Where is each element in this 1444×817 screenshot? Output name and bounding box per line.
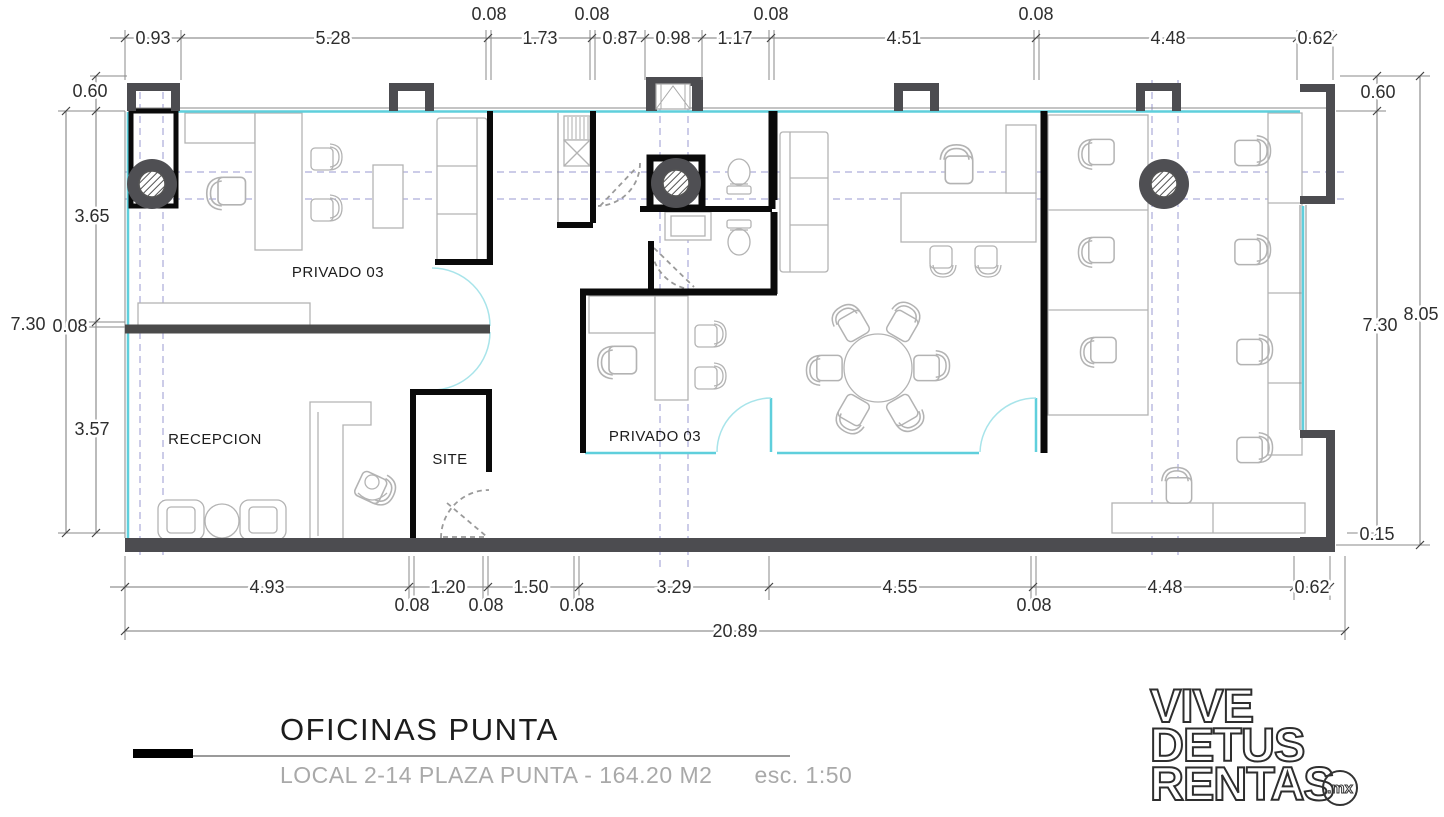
dim-top-1: 5.28 bbox=[315, 28, 350, 48]
dim-left-365: 3.65 bbox=[74, 206, 109, 226]
dim-top-6: 0.98 bbox=[655, 28, 690, 48]
logo-mx-badge: .mx bbox=[1322, 770, 1358, 806]
room-label-site: SITE bbox=[432, 451, 467, 468]
dim-top-0: 0.93 bbox=[135, 28, 170, 48]
dim-bottom-2: 1.20 bbox=[430, 577, 465, 597]
dim-top-2: 0.08 bbox=[471, 4, 506, 24]
plan-title: OFICINAS PUNTA bbox=[280, 712, 559, 748]
dim-bottom-1: 0.08 bbox=[394, 595, 429, 615]
column bbox=[651, 158, 701, 208]
plan-subtitle-row: LOCAL 2-14 PLAZA PUNTA - 164.20 M2esc. 1… bbox=[280, 762, 852, 789]
dim-left-008: 0.08 bbox=[52, 316, 87, 336]
column bbox=[1139, 159, 1189, 209]
dim-bottom-3: 0.08 bbox=[468, 595, 503, 615]
dim-bottom-10: 0.62 bbox=[1294, 577, 1329, 597]
dim-bottom-total: 20.89 bbox=[712, 621, 757, 641]
column bbox=[127, 159, 177, 209]
dim-left-357: 3.57 bbox=[74, 419, 109, 439]
dim-top-9: 4.51 bbox=[886, 28, 921, 48]
dim-left-total: 7.30 bbox=[10, 314, 45, 334]
dim-top-10: 0.08 bbox=[1018, 4, 1053, 24]
meeting-table bbox=[806, 297, 949, 438]
dim-bottom-6: 3.29 bbox=[656, 577, 691, 597]
dim-left-060: 0.60 bbox=[72, 81, 107, 101]
vivedetusrentas-logo: VIVE DETUS RENTAS bbox=[1150, 686, 1334, 803]
dim-right-730: 7.30 bbox=[1362, 315, 1397, 335]
logo-mx-text: .mx bbox=[1327, 780, 1353, 797]
floor-plan-sheet: 0.93 5.28 0.08 1.73 0.08 0.87 0.98 1.17 … bbox=[0, 0, 1444, 817]
dim-right-060: 0.60 bbox=[1360, 82, 1395, 102]
elevator-icon bbox=[656, 84, 690, 109]
dim-bottom-8: 0.08 bbox=[1016, 595, 1051, 615]
room-label-privado-left: PRIVADO 03 bbox=[292, 264, 384, 281]
dim-top-3: 1.73 bbox=[522, 28, 557, 48]
dim-right-015: 0.15 bbox=[1359, 524, 1394, 544]
dim-bottom-9: 4.48 bbox=[1147, 577, 1182, 597]
dim-top-5: 0.87 bbox=[602, 28, 637, 48]
title-block-rule bbox=[193, 755, 790, 757]
dim-top-12: 0.62 bbox=[1297, 28, 1332, 48]
dim-right-total: 8.05 bbox=[1403, 304, 1438, 324]
room-label-privado-mid: PRIVADO 03 bbox=[609, 428, 701, 445]
logo-line-3: RENTAS bbox=[1150, 764, 1334, 803]
title-block-bar bbox=[133, 749, 193, 758]
dim-top-11: 4.48 bbox=[1150, 28, 1185, 48]
plan-subtitle: LOCAL 2-14 PLAZA PUNTA - 164.20 M2 bbox=[280, 762, 712, 788]
dim-top-4: 0.08 bbox=[574, 4, 609, 24]
dim-bottom-7: 4.55 bbox=[882, 577, 917, 597]
plan-scale: esc. 1:50 bbox=[754, 762, 852, 788]
dim-bottom-0: 4.93 bbox=[249, 577, 284, 597]
dim-top-8: 0.08 bbox=[753, 4, 788, 24]
room-label-recepcion: RECEPCION bbox=[168, 431, 262, 448]
dim-bottom-5: 0.08 bbox=[559, 595, 594, 615]
dim-bottom-4: 1.50 bbox=[513, 577, 548, 597]
dim-top-7: 1.17 bbox=[717, 28, 752, 48]
